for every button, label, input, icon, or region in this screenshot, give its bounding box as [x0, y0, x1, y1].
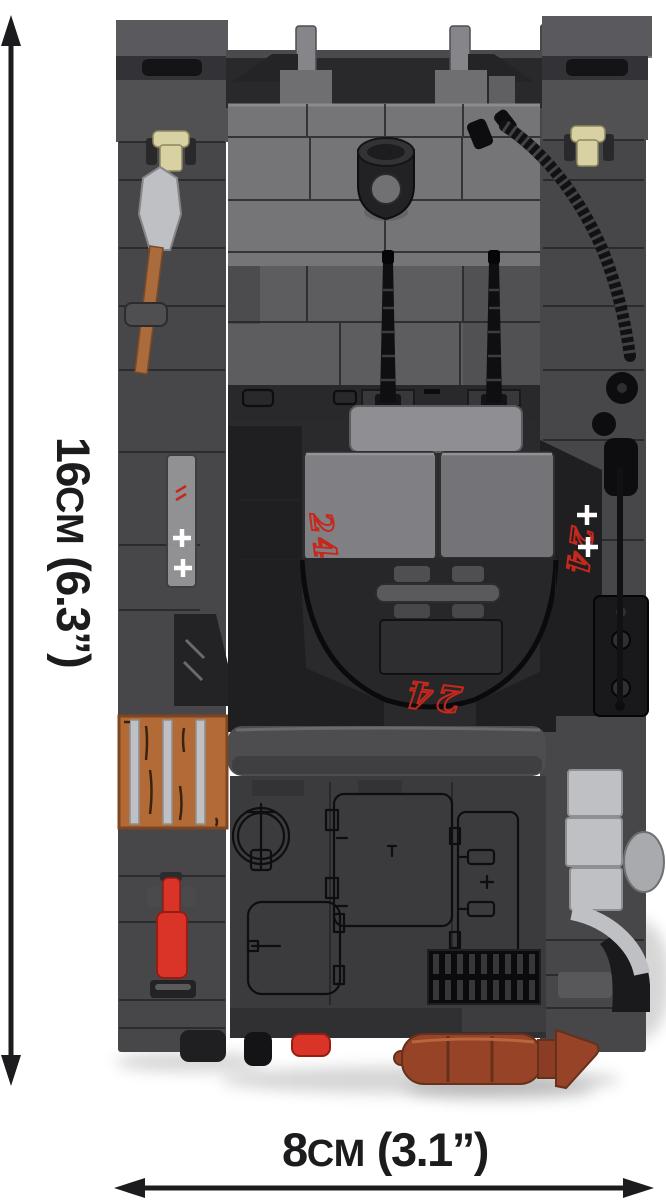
width-arrow-head-right [623, 1178, 654, 1198]
tactical-number-rear: 24 [401, 672, 465, 721]
mid-band [228, 726, 546, 776]
right-box-hinge [566, 59, 628, 76]
superstructure: 24 24 24 [174, 406, 602, 732]
illustration: 24 24 24 [0, 0, 666, 1200]
width-annotation: 8cm(3.1”) [114, 1123, 654, 1198]
tactical-number-left: 24 [302, 510, 343, 565]
front-brick-1 [280, 70, 332, 108]
brick-model: 24 24 24 [116, 16, 664, 1088]
shovel-clamp [125, 303, 167, 326]
right-rear-step [558, 972, 612, 998]
height-arrow-head-bottom [1, 1055, 21, 1086]
roof-plate [350, 406, 522, 452]
front-brick-3 [489, 76, 515, 108]
shovel-blade [139, 167, 181, 250]
height-annotation: 16cm(6.3”) [1, 15, 100, 1086]
wooden-crate [119, 716, 227, 828]
deck-rear-step [462, 1008, 546, 1032]
rear-panel [380, 620, 502, 674]
deck-notch-2 [358, 780, 402, 794]
height-arrow-head-top [1, 15, 21, 46]
width-label: 8cm(3.1”) [282, 1123, 488, 1176]
front-brick-2 [435, 70, 487, 108]
left-box-hinge [142, 59, 202, 76]
height-unit: cm [48, 486, 90, 544]
tool-clip [146, 131, 196, 171]
headlight [358, 138, 414, 221]
width-arrow-head-left [114, 1178, 145, 1198]
spare-wheel [624, 832, 664, 892]
engine-deck [230, 776, 546, 1038]
tactical-number-right: 24 [558, 524, 599, 579]
left-rear-foot [180, 1030, 226, 1062]
width-value: 8 [282, 1123, 307, 1176]
height-value: 16 [47, 437, 100, 487]
rear-light [292, 1034, 330, 1056]
right-stowage-box-lid [542, 16, 652, 56]
tow-bracket-left [296, 26, 316, 72]
muffler [394, 1030, 599, 1088]
left-vision-strip [167, 455, 196, 587]
height-label: 16cm(6.3”) [47, 437, 100, 668]
roof-hatch-right [440, 452, 554, 558]
left-stowage-box-lid [116, 20, 228, 58]
tow-bracket-right [450, 26, 470, 72]
vent-grille [428, 950, 540, 1004]
height-imperial: (6.3”) [47, 556, 100, 667]
deck-notch-1 [252, 780, 304, 796]
width-imperial: (3.1”) [377, 1123, 488, 1176]
glacis-plate [228, 104, 540, 266]
width-unit: cm [307, 1133, 365, 1175]
hull-front [226, 26, 542, 108]
product-dimension-image: 24 24 24 [0, 0, 666, 1200]
rear-foot [244, 1032, 272, 1066]
left-fender [116, 20, 228, 1062]
